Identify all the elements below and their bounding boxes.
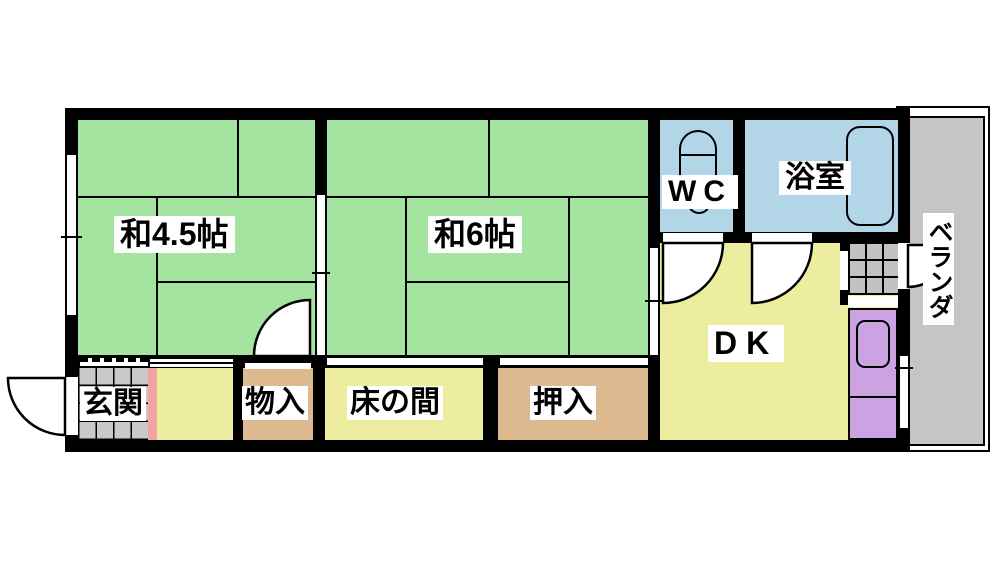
label-storage: 物入 — [242, 386, 308, 420]
label-japanese-room-45: 和4.5帖 — [114, 216, 235, 253]
genkan-boundary-dashed — [80, 358, 148, 366]
label-dk: DK — [708, 325, 784, 362]
window-tick — [61, 236, 82, 238]
label-japanese-room-6: 和6帖 — [428, 216, 522, 253]
kitchen-nook-threshold — [848, 296, 898, 307]
wc-door-opening — [663, 233, 723, 243]
label-closet: 押入 — [530, 386, 596, 420]
entrance-step-strip — [148, 368, 157, 440]
tatami-line — [405, 281, 568, 283]
label-veranda: ベランダ — [923, 213, 954, 325]
label-genkan: 玄関 — [80, 387, 146, 421]
sliding-door-tick — [312, 272, 330, 274]
tatami-line — [405, 196, 407, 355]
entrance-door-opening — [65, 377, 78, 435]
kitchen-nook-opening — [840, 251, 848, 290]
sliding-door-closet — [500, 356, 648, 367]
tatami-line — [78, 196, 315, 198]
window-tick — [895, 367, 913, 369]
tatami-line — [156, 281, 315, 283]
tatami-line — [237, 120, 239, 198]
hall-opening-line — [150, 362, 233, 364]
kitchen-sink-icon — [856, 320, 890, 368]
entrance-door-arc — [8, 378, 65, 435]
tatami-line — [568, 196, 570, 355]
sliding-door-between-rooms — [315, 195, 327, 355]
label-wc: WC — [662, 175, 738, 209]
bathtub-icon — [846, 126, 894, 226]
kitchen-counter-divider — [848, 396, 898, 398]
window-left-wall — [65, 155, 78, 315]
label-bath: 浴室 — [779, 161, 851, 195]
hall-floor — [157, 368, 233, 440]
floor-plan: 和4.5帖 和6帖 WC 浴室 DK 玄関 物入 床の間 押入 ベランダ — [0, 0, 1000, 562]
sliding-door-tick — [645, 300, 663, 302]
tiled-kitchen-floor — [848, 243, 898, 295]
tatami-line — [488, 120, 490, 198]
bath-door-opening — [752, 233, 812, 243]
storage-door-front — [245, 361, 311, 369]
veranda-door-opening — [898, 243, 910, 289]
sliding-door-tokonoma — [327, 356, 483, 367]
label-tokonoma: 床の間 — [347, 386, 443, 420]
